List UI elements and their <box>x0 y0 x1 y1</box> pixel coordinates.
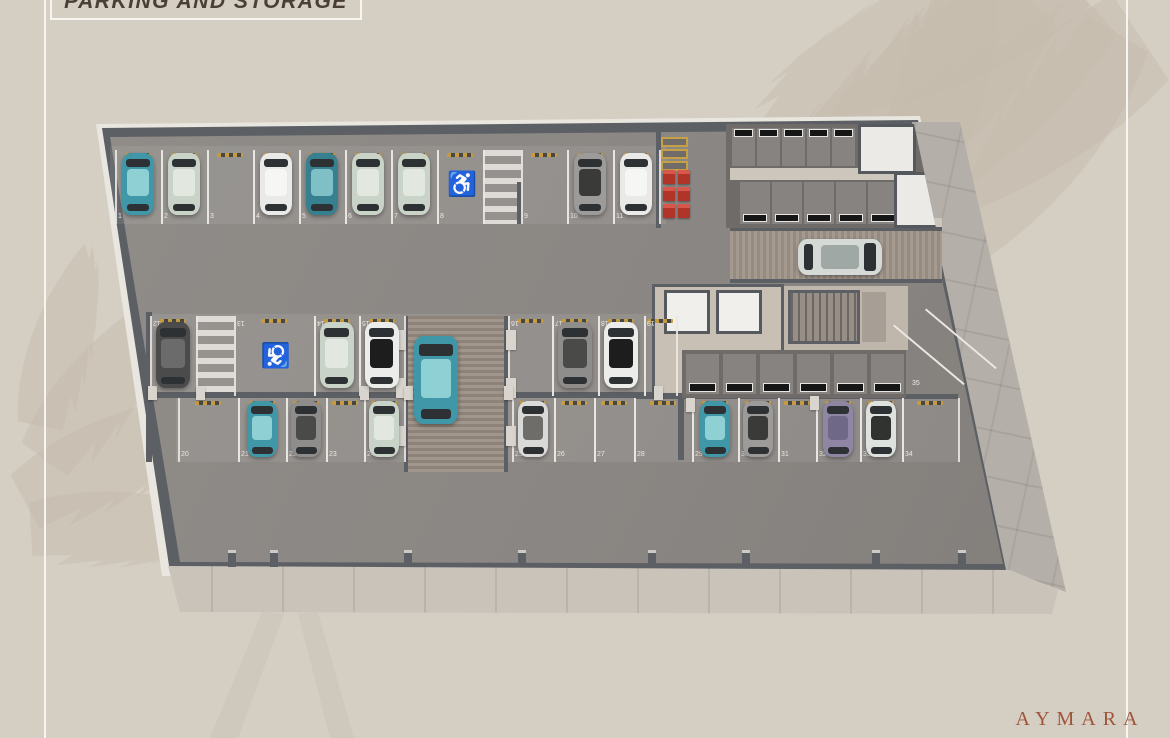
stall-line <box>115 150 117 224</box>
car-windshield <box>864 243 877 270</box>
car-windshield <box>870 406 893 414</box>
stall-line <box>391 150 393 224</box>
car-rear-window <box>579 204 601 211</box>
parked-car-spot-11 <box>620 153 652 215</box>
wheel-stop <box>531 153 557 157</box>
car-rear-window <box>828 447 849 453</box>
car-windshield <box>522 406 545 414</box>
car-roof <box>403 169 425 196</box>
wheel-stop <box>601 401 627 405</box>
car-windshield <box>251 406 274 414</box>
stall-line <box>207 150 209 224</box>
stall-line <box>521 150 523 224</box>
car-rear-window <box>403 204 425 211</box>
car-rear-window <box>609 377 633 384</box>
car-roof <box>374 416 394 441</box>
ramp-pillar <box>506 426 516 446</box>
stall-line <box>345 150 347 224</box>
brochure-page: 35 12345678♿910111213♿141516171819202122… <box>0 0 1170 738</box>
column-pillar <box>148 386 157 400</box>
car-roof <box>296 416 316 441</box>
storage-door <box>874 383 901 392</box>
bottom-wall-pillar <box>872 550 880 567</box>
storage-door <box>807 214 831 222</box>
elevator-2 <box>716 290 762 334</box>
car-rear-window <box>161 377 185 384</box>
car-central-ramp <box>414 336 458 424</box>
car-windshield <box>608 328 634 337</box>
stall-line <box>958 398 960 462</box>
car-rear-window <box>296 447 317 453</box>
elevator-1 <box>664 290 710 334</box>
stall-line <box>196 316 198 396</box>
column-pillar <box>686 398 695 412</box>
column-pillar <box>504 386 513 400</box>
storage-door <box>839 214 863 222</box>
storage-block-top <box>726 124 942 228</box>
parking-spot-number: 5 <box>302 213 306 220</box>
red-equipment-box <box>663 170 675 184</box>
storage-door <box>809 129 828 137</box>
stall-line <box>676 316 678 396</box>
storage-door <box>871 214 895 222</box>
car-roof <box>563 339 586 368</box>
storage-unit <box>834 354 867 394</box>
car-rear-window <box>311 204 333 211</box>
stall-line <box>613 150 615 224</box>
stall-line <box>902 398 904 462</box>
column-pillar <box>196 386 205 400</box>
stall-line <box>234 316 236 396</box>
wheel-stop <box>650 401 676 405</box>
brand-logo: AYMARA <box>995 708 1165 731</box>
red-equipment-box <box>678 187 690 201</box>
stair-landing <box>862 292 886 342</box>
car-rear-window <box>374 447 395 453</box>
stall-line <box>860 398 862 462</box>
car-windshield <box>402 159 426 168</box>
bottom-wall-pillar <box>228 550 236 567</box>
car-roof <box>370 339 393 368</box>
handicap-icon: ♿ <box>447 173 477 197</box>
parked-car-spot-6 <box>352 153 384 215</box>
storage-door <box>834 129 853 137</box>
parking-spot-number: 26 <box>557 451 565 458</box>
parking-spot-number: 27 <box>597 451 605 458</box>
car-roof <box>421 359 451 398</box>
parked-car-spot-17 <box>558 322 592 388</box>
car-rear-window <box>370 377 394 384</box>
parked-car-spot-25 <box>518 401 548 457</box>
storage-unit <box>807 128 830 166</box>
parked-car-spot-18 <box>604 322 638 388</box>
car-windshield <box>172 159 196 168</box>
stall-line <box>314 316 316 396</box>
stall-line <box>598 316 600 396</box>
car-roof <box>625 169 647 196</box>
car-windshield <box>310 159 334 168</box>
stall-line <box>253 150 255 224</box>
wheel-stop <box>195 401 221 405</box>
car-windshield <box>562 328 588 337</box>
column-pillar <box>810 396 819 410</box>
parking-spot-number: 13 <box>237 319 245 326</box>
column-pillar <box>654 386 663 400</box>
page-title: PARKING AND STORAGE <box>64 0 348 14</box>
storage-unit <box>760 354 793 394</box>
car-windshield <box>356 159 380 168</box>
storage-door <box>800 383 827 392</box>
parked-car-spot-1 <box>122 153 154 215</box>
parked-car-spot-2 <box>168 153 200 215</box>
ramp-pillar <box>506 330 516 350</box>
parking-spot-number: 2 <box>164 213 168 220</box>
crosswalk-middle <box>196 316 234 396</box>
stall-line <box>738 398 740 462</box>
car-roof <box>161 339 184 368</box>
parking-spot-number: 7 <box>394 213 398 220</box>
stall-line <box>483 150 485 224</box>
parked-car-spot-15 <box>365 322 399 388</box>
car-windshield <box>295 406 318 414</box>
car-rear-window <box>127 204 149 211</box>
car-roof <box>821 245 860 270</box>
stall-line <box>659 150 661 224</box>
parking-spot-number: 20 <box>181 451 189 458</box>
wheel-stop <box>447 153 473 157</box>
storage-unit <box>804 182 834 224</box>
car-rear-window <box>357 204 379 211</box>
storage-door <box>784 129 803 137</box>
parking-spot-number: 6 <box>348 213 352 220</box>
car-windshield <box>369 328 395 337</box>
storage-unit <box>871 354 904 394</box>
bottom-wall-pillar <box>958 550 966 567</box>
car-windshield <box>373 406 396 414</box>
parking-spot-number: 23 <box>329 451 337 458</box>
stairwell <box>788 290 860 344</box>
parked-car-spot-32 <box>823 401 853 457</box>
car-windshield <box>704 406 727 414</box>
car-roof <box>748 416 768 441</box>
parked-car-spot-4 <box>260 153 292 215</box>
parked-car-spot-33 <box>866 401 896 457</box>
bottom-wall-pillar <box>648 550 656 567</box>
car-roof <box>828 416 848 441</box>
wheel-stop <box>261 319 287 323</box>
car-rear-window <box>325 377 349 384</box>
stall-line <box>634 398 636 462</box>
stall-line <box>554 398 556 462</box>
stall-line <box>238 398 240 462</box>
stall-line <box>552 316 554 396</box>
wheel-stop <box>917 401 943 405</box>
storage-door <box>726 383 753 392</box>
car-rear-window <box>563 377 587 384</box>
car-windshield <box>827 406 850 414</box>
parking-spot-number: 9 <box>524 213 528 220</box>
car-rear-window <box>523 447 544 453</box>
car-windshield <box>126 159 150 168</box>
car-windshield <box>419 344 452 356</box>
parked-car-spot-10 <box>574 153 606 215</box>
column-pillar <box>360 386 369 400</box>
parking-spot-number: 34 <box>905 451 913 458</box>
storage-door <box>734 129 753 137</box>
column-pillar <box>404 386 413 400</box>
parking-spot-number: 35 <box>912 380 920 387</box>
wall-stub-lower <box>678 396 684 460</box>
crosswalk-top <box>483 150 521 224</box>
bottom-wall-pillar <box>270 550 278 567</box>
storage-unit <box>686 354 719 394</box>
utility-room-1 <box>858 124 916 174</box>
parking-spot-number: 16 <box>511 319 519 326</box>
parked-car-spot-5 <box>306 153 338 215</box>
wheel-stop <box>217 153 243 157</box>
stall-line <box>161 150 163 224</box>
car-windshield <box>264 159 288 168</box>
storage-unit <box>740 182 770 224</box>
parked-car-spot-12 <box>156 322 190 388</box>
parked-car-spot-21 <box>247 401 277 457</box>
car-rear-window <box>265 204 287 211</box>
storage-unit <box>797 354 830 394</box>
wheel-stop <box>561 401 587 405</box>
parking-spot-number: 28 <box>637 451 645 458</box>
parking-spot-number: 19 <box>647 319 655 326</box>
handicap-icon: ♿ <box>261 342 291 366</box>
parked-car-spot-30 <box>743 401 773 457</box>
car-roof <box>325 339 348 368</box>
car-roof <box>127 169 149 196</box>
car-roof <box>871 416 891 441</box>
storage-door <box>759 129 778 137</box>
storage-unit <box>782 128 805 166</box>
car-windshield <box>160 328 186 337</box>
storage-door <box>837 383 864 392</box>
storage-unit <box>836 182 866 224</box>
frame-line-right <box>1126 0 1128 738</box>
car-roof <box>523 416 543 441</box>
parked-car-spot-24 <box>369 401 399 457</box>
stall-line <box>359 316 361 396</box>
car-rear-window <box>804 244 813 269</box>
bottom-wall-pillar <box>404 550 412 567</box>
parking-spot-number: 3 <box>210 213 214 220</box>
parking-floorplan: 35 12345678♿910111213♿141516171819202122… <box>0 0 1170 738</box>
storage-unit <box>732 128 755 166</box>
bottom-wall-pillar <box>742 550 750 567</box>
car-rear-window <box>173 204 195 211</box>
stall-line <box>286 398 288 462</box>
title-box: PARKING AND STORAGE <box>50 0 362 20</box>
stall-line <box>299 150 301 224</box>
parked-car-spot-14 <box>320 322 354 388</box>
car-roof <box>265 169 287 196</box>
car-rear-window <box>421 409 452 419</box>
parking-spot-number: 4 <box>256 213 260 220</box>
electrical-panel <box>661 149 688 159</box>
storage-unit <box>772 182 802 224</box>
car-windshield <box>578 159 602 168</box>
storage-door <box>743 214 767 222</box>
car-rear-window <box>871 447 892 453</box>
parking-spot-number: 10 <box>570 213 578 220</box>
stall-line <box>778 398 780 462</box>
storage-unit <box>832 128 855 166</box>
car-rear-window <box>705 447 726 453</box>
electrical-panel <box>661 137 688 147</box>
frame-line-left <box>44 0 46 738</box>
car-roof <box>609 339 632 368</box>
car-entry-ramp <box>798 239 882 275</box>
stall-line <box>364 398 366 462</box>
car-roof <box>357 169 379 196</box>
stall-line <box>178 398 180 462</box>
car-windshield <box>747 406 770 414</box>
stall-line <box>150 316 152 396</box>
car-rear-window <box>625 204 647 211</box>
storage-unit <box>757 128 780 166</box>
car-windshield <box>624 159 648 168</box>
red-equipment-box <box>663 187 675 201</box>
parked-car-spot-7 <box>398 153 430 215</box>
parking-spot-number: 31 <box>781 451 789 458</box>
storage-unit <box>723 354 756 394</box>
wheel-stop <box>517 319 543 323</box>
wheel-stop <box>784 401 810 405</box>
car-roof <box>173 169 195 196</box>
bottom-wall-pillar <box>518 550 526 567</box>
parking-spot-number: 1 <box>118 213 122 220</box>
storage-door <box>763 383 790 392</box>
stall-line <box>594 398 596 462</box>
car-roof <box>705 416 725 441</box>
parking-spot-number: 8 <box>440 213 444 220</box>
car-windshield <box>324 328 350 337</box>
storage-block-center <box>682 350 906 398</box>
car-rear-window <box>252 447 273 453</box>
car-rear-window <box>748 447 769 453</box>
stall-line <box>644 316 646 396</box>
red-equipment-box <box>678 204 690 218</box>
wheel-stop <box>332 401 358 405</box>
car-roof <box>252 416 272 441</box>
red-equipment-box <box>678 170 690 184</box>
storage-door <box>689 383 716 392</box>
stall-line <box>437 150 439 224</box>
stall-line <box>567 150 569 224</box>
red-equipment-box <box>663 204 675 218</box>
stall-line <box>326 398 328 462</box>
parked-car-spot-29 <box>700 401 730 457</box>
car-roof <box>579 169 601 196</box>
parked-car-spot-22 <box>291 401 321 457</box>
parking-spot-number: 11 <box>616 213 623 220</box>
car-roof <box>311 169 333 196</box>
storage-door <box>775 214 799 222</box>
